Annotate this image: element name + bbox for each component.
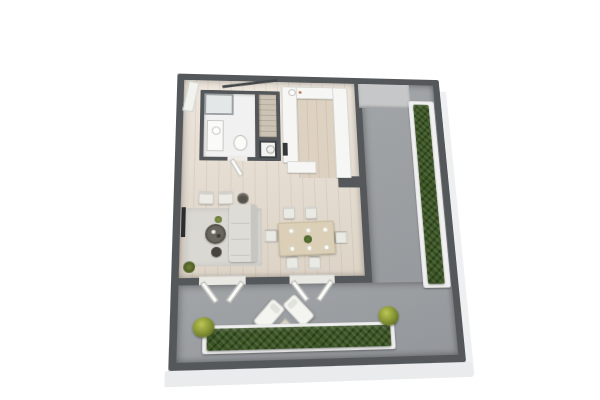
armchair-right — [218, 191, 234, 205]
dining-chair — [305, 206, 318, 219]
plate — [306, 245, 312, 251]
tray-item — [211, 230, 215, 234]
decor-item — [217, 234, 221, 238]
kitchen-faucet — [299, 91, 302, 94]
lounger-headrest — [287, 298, 299, 310]
plate — [289, 246, 295, 252]
wall-tv — [181, 207, 186, 237]
kitchen-peninsula — [287, 161, 317, 173]
dining-table — [278, 221, 337, 257]
plate — [305, 227, 311, 233]
kitchen-sink — [288, 89, 296, 96]
washer-door — [266, 145, 275, 153]
lounger-headrest — [269, 302, 281, 314]
plate — [323, 244, 329, 250]
dining-chair — [335, 232, 348, 244]
corner-sofa — [229, 204, 257, 262]
staircase — [259, 95, 277, 138]
dining-chair — [286, 257, 299, 271]
green-centerpiece — [304, 235, 313, 243]
potted-plant — [215, 216, 222, 223]
vanity-sink — [206, 120, 223, 151]
apartment-plan — [168, 74, 466, 371]
dining-chair — [283, 206, 295, 219]
washing-machine — [259, 141, 277, 159]
floorplan-render — [0, 0, 600, 400]
terrace-ledge — [358, 84, 411, 109]
dining-chair — [264, 230, 277, 242]
toilet — [233, 135, 247, 151]
armchair-left — [198, 190, 214, 204]
sink-bowl — [212, 126, 221, 134]
dining-chair — [309, 257, 321, 270]
plate — [288, 228, 294, 234]
sofa-cushions — [231, 208, 250, 258]
shower — [204, 93, 234, 115]
oven — [283, 143, 288, 156]
basket — [237, 193, 248, 204]
plate — [322, 227, 328, 233]
sofa-backrest — [251, 204, 258, 262]
bathroom — [199, 90, 281, 161]
